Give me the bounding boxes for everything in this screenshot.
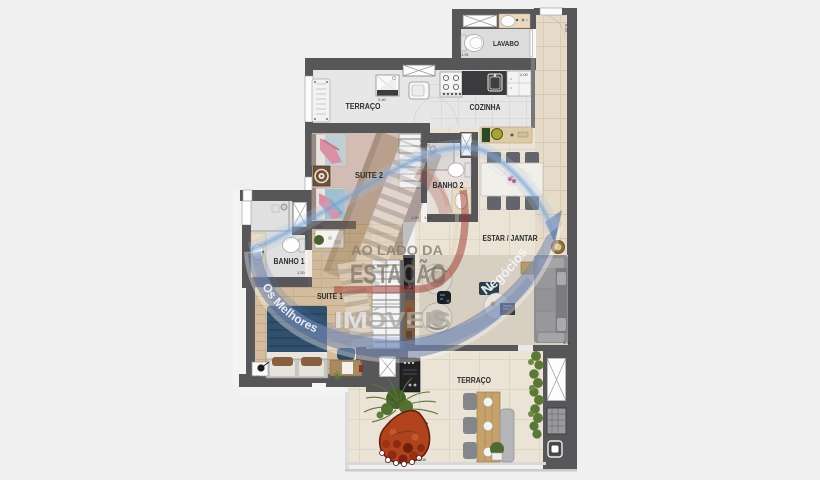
svg-text:BANHO 2: BANHO 2 [433, 181, 464, 190]
svg-text:2.00: 2.00 [520, 72, 529, 77]
svg-text:AO LADO DA: AO LADO DA [351, 242, 443, 258]
svg-text:ESTAR / JANTAR: ESTAR / JANTAR [483, 234, 538, 243]
svg-text:ESTAÇÃO: ESTAÇÃO [350, 258, 446, 289]
svg-text:COZINHA: COZINHA [470, 103, 501, 112]
svg-text:IM: IM [334, 307, 368, 333]
svg-text:1.91: 1.91 [461, 52, 470, 57]
svg-text:1.38: 1.38 [424, 215, 433, 220]
svg-text:BANHO 1: BANHO 1 [274, 257, 305, 266]
svg-text:LAVABO: LAVABO [493, 41, 519, 48]
svg-text:3.20: 3.20 [252, 374, 261, 379]
svg-text:4.30: 4.30 [563, 340, 572, 345]
svg-text:6.25: 6.25 [564, 24, 569, 33]
svg-text:TERRAÇO: TERRAÇO [346, 102, 381, 111]
svg-text:5.08: 5.08 [418, 457, 427, 462]
svg-text:1.20: 1.20 [297, 270, 306, 275]
svg-text:TERRAÇO: TERRAÇO [457, 376, 491, 385]
svg-text:SUITE 1: SUITE 1 [317, 292, 343, 301]
svg-text:SUITE 2: SUITE 2 [355, 171, 384, 180]
